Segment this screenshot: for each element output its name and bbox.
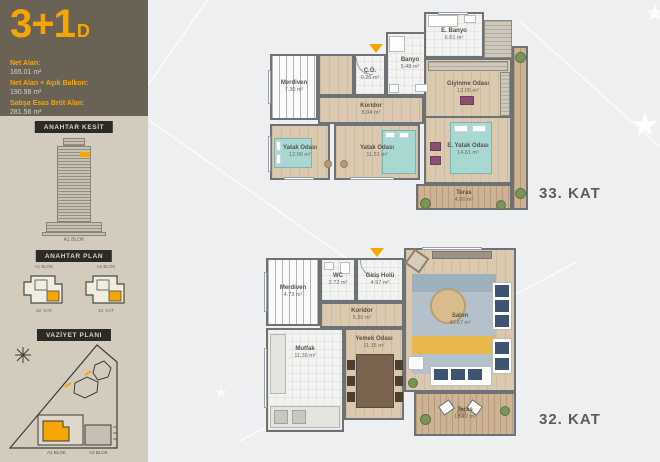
rug-accent-band [412,336,496,354]
window [350,177,394,180]
unit-variant-label: D [77,21,90,42]
sink [324,262,334,270]
window [438,12,468,15]
chair [395,360,403,370]
floor-label-33: 33. KAT [539,185,601,202]
window [284,177,314,180]
site-plan-graphic: A1 BLOK A2 BLOK [7,343,141,459]
sofa-cushion [495,342,509,354]
stove [274,410,288,424]
plant [420,198,431,209]
sofa-cushion [451,369,465,380]
teras-strip-33 [512,46,528,210]
area-label: Net Alan + Açık Balkon: [10,79,142,88]
sofa-cushion [495,358,509,370]
chair [347,392,355,402]
chair [395,376,403,386]
room-merdiven-33: Merdiven 7.30 m² [270,54,318,120]
wardrobe-33 [484,20,512,58]
background-line [147,0,263,86]
armchair [430,142,441,151]
keyplan-thumb-33: A1 BLOK 33. KAT [78,264,134,313]
window [264,348,267,408]
room-merdiven-32: Merdiven 4.73 m² [266,258,320,326]
toilet [389,84,399,93]
area-value: 281.56 m² [10,108,142,117]
key-plan-badge: ANAHTAR PLAN [36,250,112,262]
sofa-cushion [495,285,509,297]
sidebar: 3+1 D Net Alan: 165.01 m² Net Alan + Açı… [0,0,148,462]
window [268,70,271,104]
keyplan-graphic-icon [20,270,68,308]
window [264,272,267,312]
area-value: 190.98 m² [10,88,142,97]
floor-label-32: 32. KAT [539,411,601,428]
floorplan-page: 3+1 D Net Alan: 165.01 m² Net Alan + Açı… [0,0,660,462]
pillow [276,141,281,151]
room-koridor-32: Koridor 5.30 m² [320,302,404,328]
plant [515,188,526,199]
ottoman [460,96,474,105]
unit-title: 3+1 D [10,2,90,47]
tower-base-icon [46,222,102,232]
site-block-label: A1 BLOK [47,450,66,455]
toilet [340,262,350,274]
area-summary: Net Alan: 165.01 m² Net Alan + Açık Balk… [10,57,142,117]
pillow [472,125,486,132]
bathtub [428,15,458,27]
side-table [324,160,332,168]
wardrobe [428,61,508,71]
plant [496,200,506,210]
pillow [454,125,468,132]
chair [347,360,355,370]
armchair [408,356,424,370]
shower [389,36,405,52]
sofa-cushion [495,315,509,327]
keyplan-thumb-32: A1 BLOK 32. KAT [16,264,72,313]
area-value: 165.01 m² [10,68,142,77]
pillow [276,154,281,164]
window [268,136,271,172]
pillow [399,132,409,138]
unit-type-label: 3+1 [10,2,75,47]
dining-table [356,354,394,408]
sideboard [432,251,492,259]
plant [500,406,510,416]
plant [515,52,526,63]
tower-caption: A1 BLOK [0,237,148,243]
plant [420,414,431,425]
tower-base-icon [42,232,106,236]
star-decoration-icon [214,386,228,400]
unit-header: 3+1 D Net Alan: 165.01 m² Net Alan + Açı… [0,0,148,116]
key-section-badge: ANAHTAR KESİT [35,121,113,133]
area-label: Satışa Esas Brüt Alan: [10,99,142,108]
sofa-cushion [495,300,509,312]
compass-icon [15,347,31,363]
tower-icon [57,146,91,222]
sink [464,15,476,23]
star-decoration-icon [646,4,660,22]
keyplan-block-label: A1 BLOK [16,264,72,269]
keyplan-block-label: A1 BLOK [78,264,134,269]
area-label: Net Alan: [10,59,142,68]
window [422,247,482,250]
chair [395,392,403,402]
floorplan-32: Merdiven 4.73 m² WC 2.72 m² Giriş Holü 4… [262,248,520,440]
sink [415,84,428,92]
side-table [340,160,348,168]
armchair [430,156,441,165]
pillow [385,132,395,138]
keyplan-graphic-icon [82,270,130,308]
hall-33 [318,54,354,96]
kitchen-sink [292,410,306,424]
site-block-label: A2 BLOK [89,450,108,455]
kitchen-counter [270,334,286,394]
plant [408,378,418,388]
sofa-cushion [468,369,482,380]
wardrobe [500,72,510,116]
floor-highlight-marker [80,152,89,157]
room-koridor-33: Koridor 8.04 m² [318,96,424,124]
tower-top-icon [63,138,85,146]
chair [347,376,355,386]
floorplan-33: Merdiven 7.30 m² Ç.Ö. 0.26 m² Banyo 5.48… [266,12,528,212]
sofa-cushion [434,369,448,380]
site-plan-badge: VAZİYET PLANI [37,329,111,341]
keyplan-floor-label: 32. KAT [16,308,72,313]
keyplan-floor-label: 33. KAT [78,308,134,313]
